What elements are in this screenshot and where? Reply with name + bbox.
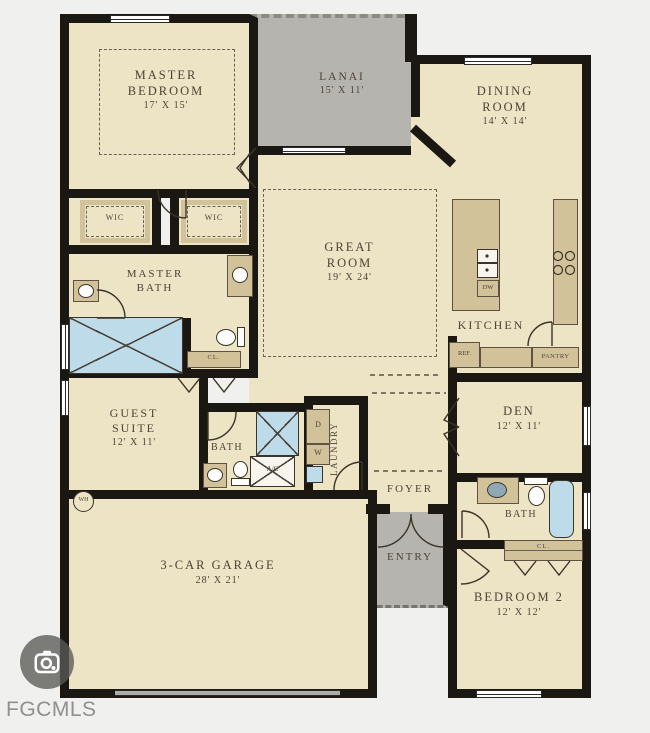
master-toilet-tank [237,327,245,347]
window-bath2-right [583,492,591,530]
dishwasher-label: DW [477,284,499,291]
floor-plan-image: MASTER BEDROOM 17' X 15' LANAI 15' X 11'… [0,0,650,733]
camera-icon [32,647,62,677]
master-vanity-bowl [232,267,248,283]
master-toilet-bowl [216,329,236,346]
guest-shower [256,411,299,456]
kitchen-label: KITCHEN [447,318,535,333]
master-sink-left-bowl [78,284,94,298]
wic-right-label: WIC [194,214,234,223]
window-den-right [583,406,591,446]
bath2-toilet-tank [524,477,548,485]
master-bath-label: MASTER BATH [120,268,190,296]
wall-dining-left-stub [411,55,420,117]
bath-2-label: BATH [492,509,550,520]
island-sink-2 [477,263,498,278]
garage-label: 3-CAR GARAGE 28' X 21' [133,558,303,587]
refrigerator-label: REF. [449,350,480,357]
bath2-tub [549,480,574,538]
bath2-toilet-bowl [528,486,545,506]
guest-toilet-bowl [233,461,248,478]
window-master-top [110,15,170,23]
room-garage [60,490,377,698]
guest-sink-bowl [207,468,223,482]
wall-entry-jamb-left [366,504,390,514]
foyer-label: FOYER [379,483,441,495]
wall-bath2-bed2 [448,540,506,549]
wall-left-outer [60,189,69,698]
window-left-guest [61,380,69,416]
laundry-sink [306,466,323,483]
window-bedroom2-bottom [476,690,542,698]
dryer-label: D [306,421,330,430]
guest-suite-label: GUEST SUITE 12' X 11' [102,406,166,450]
great-room-label: GREAT ROOM 19' X 24' [312,240,387,285]
dining-room-label: DINING ROOM 14' X 14' [467,84,543,129]
bedroom-2-label: BEDROOM 2 12' X 12' [458,590,580,619]
bedroom2-closet-label: CL. [504,543,583,550]
den-label: DEN 12' X 11' [477,404,561,433]
master-bedroom-label: MASTER BEDROOM 17' X 15' [121,68,211,113]
pantry-label: PANTRY [532,353,579,360]
wall-entry-jamb-right [428,504,452,514]
washer-label: W [306,449,330,458]
kitchen-counter-bottom [480,347,532,368]
master-shower [69,317,183,374]
wic-left-label: WIC [95,214,135,223]
wall-lanai-corner [405,14,417,62]
kitchen-counter-right [553,199,578,325]
island-sink [477,249,498,263]
master-closet-label: CL. [187,354,241,361]
entry-label: ENTRY [376,551,444,563]
bath2-sink-bowl [487,482,507,498]
garage-door [115,690,340,696]
watermark-text: FGCMLS [6,698,97,722]
guest-toilet-tank [231,478,250,486]
slider-lanai [282,147,346,154]
window-left-shower [61,324,69,370]
water-heater-label: WH [73,497,94,504]
window-dining-top [464,57,532,65]
camera-badge [20,635,74,689]
guest-bath-label: BATH [202,442,252,453]
lanai-label: LANAI 15' X 11' [308,70,376,98]
ac-unit-label: A/C [250,466,295,474]
laundry-label: LAUNDRY [330,404,352,494]
